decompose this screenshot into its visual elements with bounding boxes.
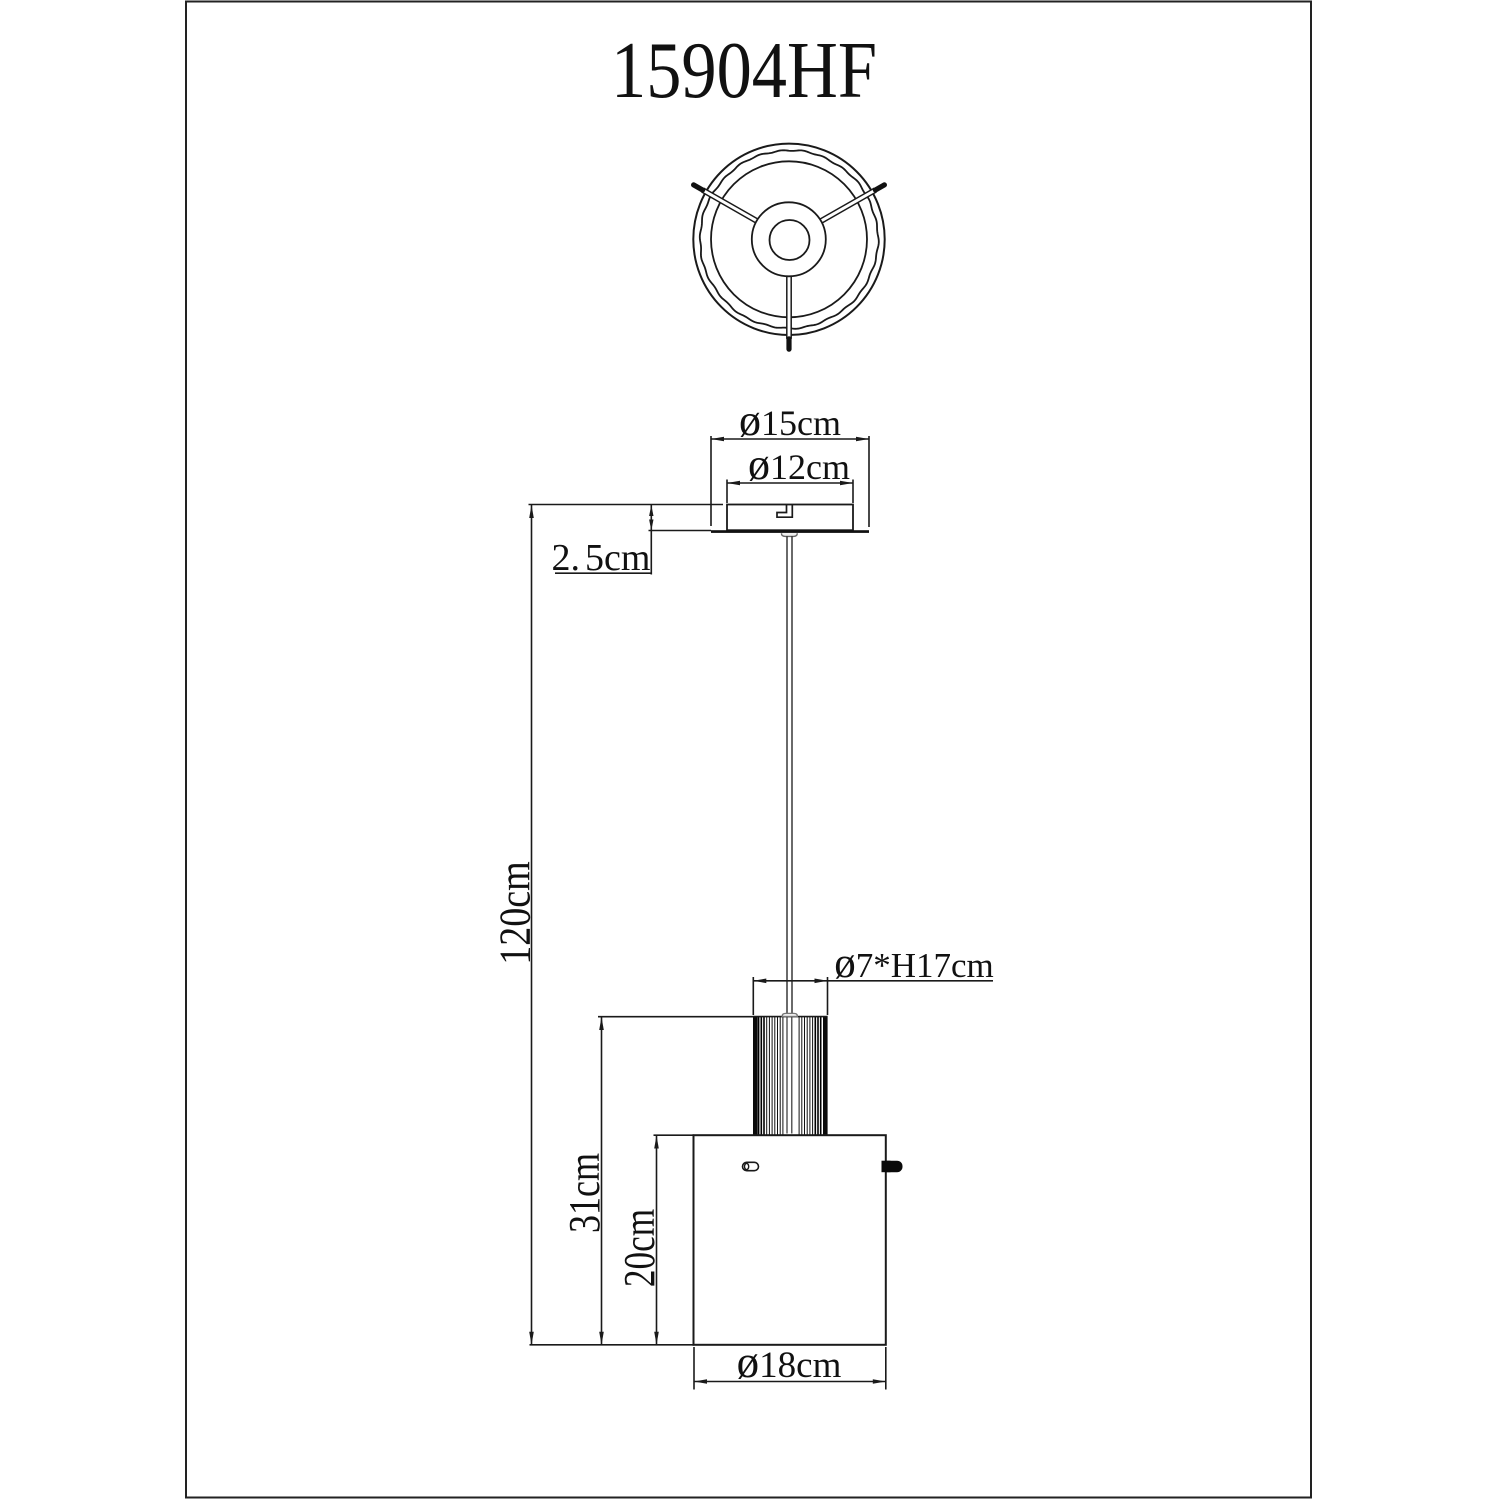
svg-text:31cm: 31cm: [560, 1153, 609, 1233]
svg-text:ø7*H17cm: ø7*H17cm: [834, 940, 994, 987]
svg-text:20cm: 20cm: [614, 1209, 664, 1287]
svg-text:ø12cm: ø12cm: [748, 440, 850, 489]
svg-text:ø18cm: ø18cm: [737, 1337, 842, 1387]
svg-text:120cm: 120cm: [490, 861, 539, 964]
svg-text:ø15cm: ø15cm: [739, 396, 841, 445]
svg-text:15904HF: 15904HF: [611, 27, 877, 115]
